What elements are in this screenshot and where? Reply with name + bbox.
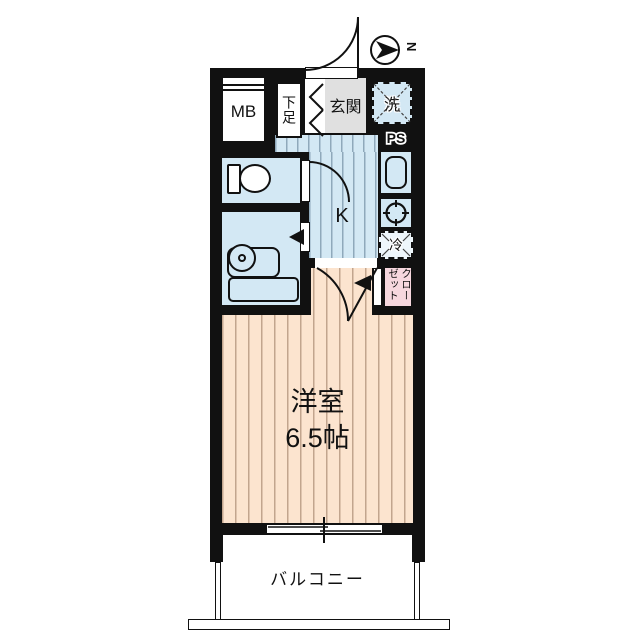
pipe-space-label: PS [387,130,406,146]
floor-plan: MB 下足 玄関 洗 K 冷 クローゼット 洋室 6. [0,0,640,640]
entrance-door-swing-arc [305,17,358,70]
bathroom-door-triangle [289,229,304,245]
folding-door-icon [310,84,323,110]
compass-arrow-icon [376,41,399,59]
room-door-leaf [348,268,377,321]
room-door-swing-arc [317,268,348,321]
toilet-door-swing-arc [309,162,349,202]
plan-symbols-overlay: PS [0,0,640,640]
folding-door-icon [310,110,323,136]
refrigerator-corner-marks [382,234,410,256]
